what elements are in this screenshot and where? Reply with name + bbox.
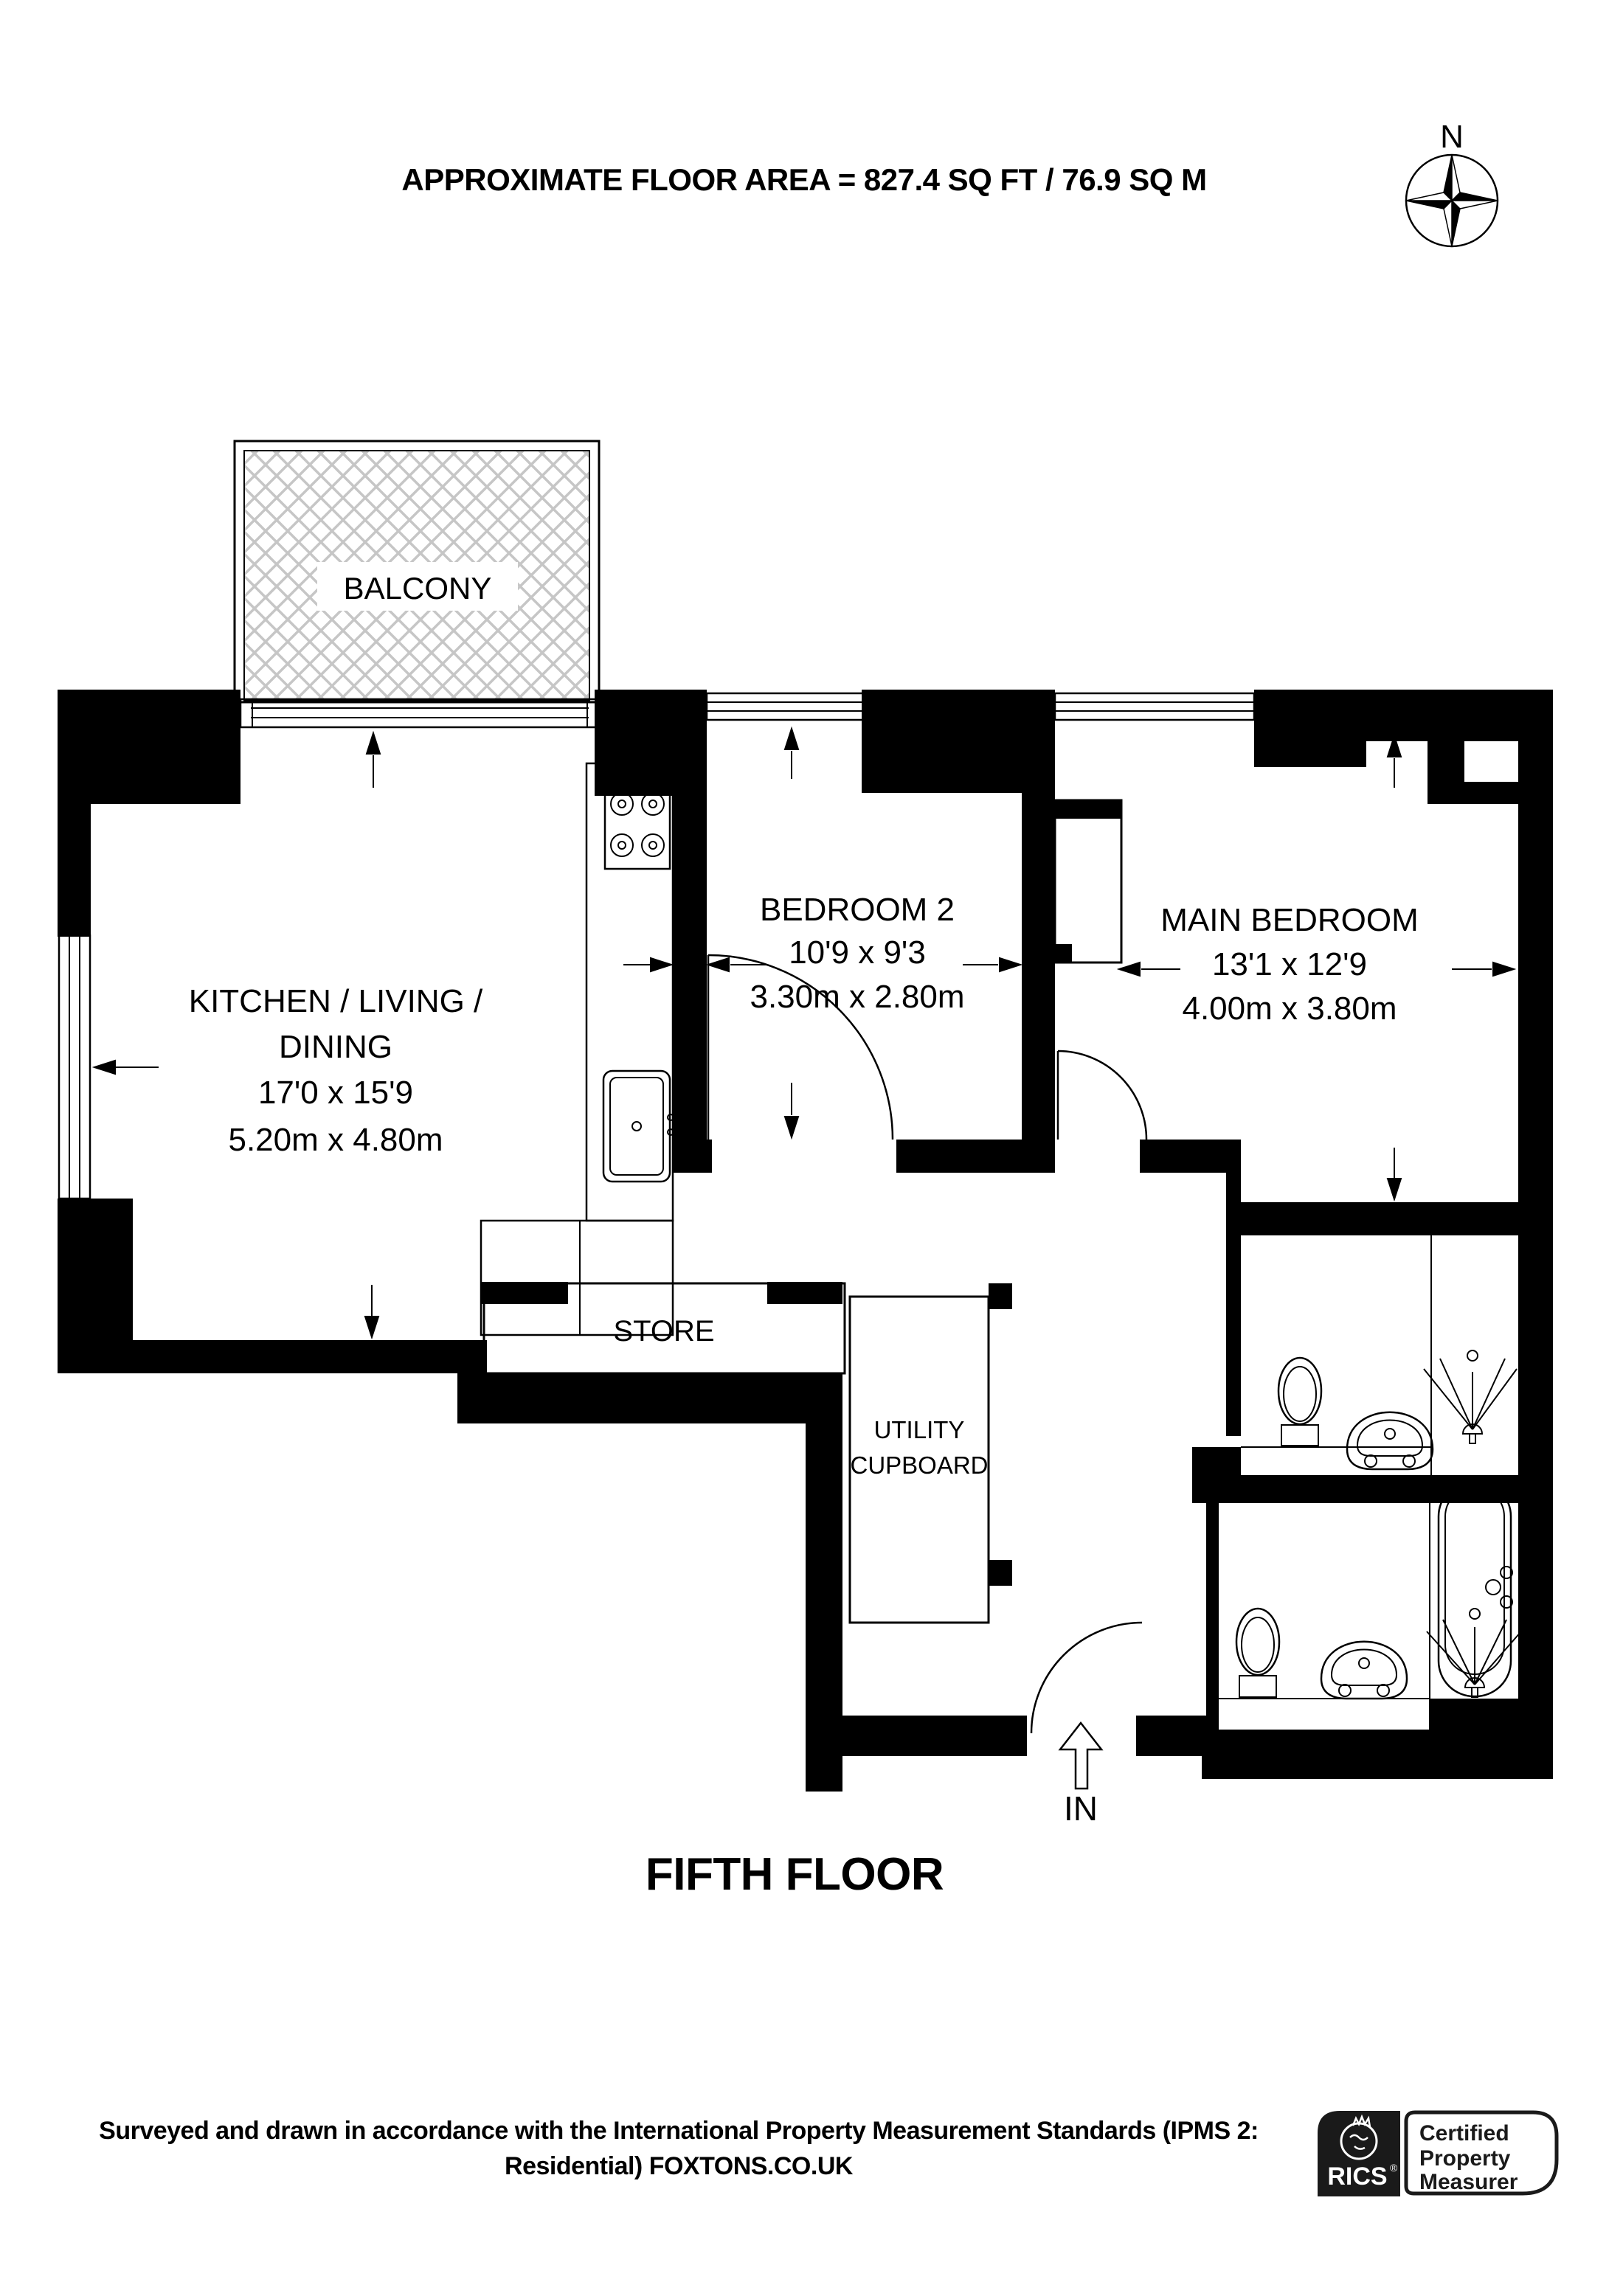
utility-label-line2: CUPBOARD <box>850 1452 988 1479</box>
cert-line3: Measurer <box>1419 2170 1518 2194</box>
compass-north-label: N <box>1440 119 1464 155</box>
main-bedroom-dim-metric: 4.00m x 3.80m <box>1182 991 1397 1027</box>
footer-line2: Residential) FOXTONS.CO.UK <box>505 2152 854 2180</box>
footer-line1: Surveyed and drawn in accordance with th… <box>99 2117 1259 2145</box>
kitchen-label-line1: KITCHEN / LIVING / <box>189 983 483 1019</box>
utility-label-line1: UTILITY <box>874 1416 965 1443</box>
bedroom2-label: BEDROOM 2 <box>760 892 955 928</box>
cert-line2: Property <box>1419 2146 1511 2171</box>
rics-registered-mark: ® <box>1390 2162 1398 2174</box>
cert-line1: Certified <box>1419 2121 1509 2146</box>
kitchen-label-line2: DINING <box>279 1029 392 1065</box>
rics-logo: RICS ® Certified Property Measurer <box>1318 2111 1557 2196</box>
floor-area-title: APPROXIMATE FLOOR AREA = 827.4 SQ FT / 7… <box>401 162 1206 197</box>
main-bedroom-label: MAIN BEDROOM <box>1160 902 1419 938</box>
bedroom2-dim-metric: 3.30m x 2.80m <box>750 979 964 1015</box>
rics-wordmark: RICS <box>1327 2163 1387 2191</box>
balcony-label: BALCONY <box>344 571 492 606</box>
entrance-in-label: IN <box>1064 1789 1098 1828</box>
kitchen-dim-imperial: 17'0 x 15'9 <box>258 1075 413 1111</box>
store-label: STORE <box>613 1315 714 1348</box>
main-bedroom-dim-imperial: 13'1 x 12'9 <box>1212 946 1367 982</box>
bedroom2-dim-imperial: 10'9 x 9'3 <box>789 934 926 971</box>
wall-notch <box>1464 741 1518 782</box>
floorplan-canvas: APPROXIMATE FLOOR AREA = 827.4 SQ FT / 7… <box>0 0 1623 2296</box>
kitchen-dim-metric: 5.20m x 4.80m <box>228 1122 443 1158</box>
floor-title: FIFTH FLOOR <box>646 1849 944 1900</box>
balcony-area: BALCONY <box>235 441 599 727</box>
